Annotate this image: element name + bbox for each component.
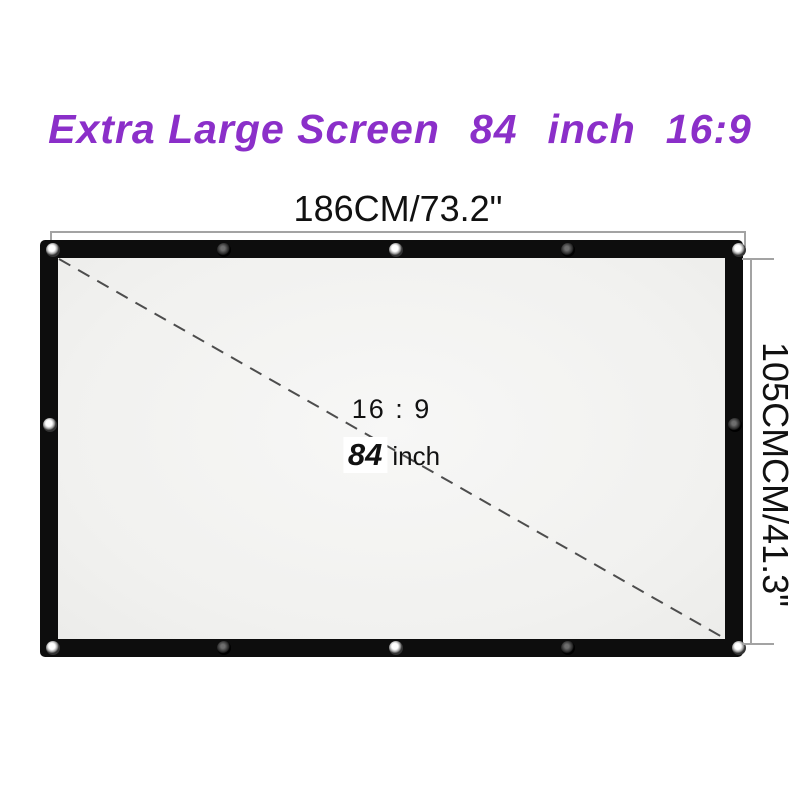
grommet-icon (732, 243, 746, 257)
grommet-icon (561, 641, 575, 655)
grommet-icon (46, 243, 60, 257)
screen-size-unit: inch (392, 441, 440, 471)
screen-surface: 16 : 9 84inch (58, 258, 725, 639)
grommet-icon (389, 641, 403, 655)
grommet-icon (217, 243, 231, 257)
title-size-value: 84 (470, 106, 518, 152)
title-size-unit: inch (548, 106, 636, 152)
screen-center-labels: 16 : 9 84inch (343, 394, 440, 473)
grommet-icon (561, 243, 575, 257)
grommet-icon (217, 641, 231, 655)
title-main: Extra Large Screen (48, 106, 440, 152)
screen-size-text: 84inch (343, 437, 440, 473)
projection-screen: 16 : 9 84inch (40, 240, 743, 657)
height-dimension-label: 105CMCM/41.3" (754, 342, 796, 607)
title-aspect-ratio: 16:9 (666, 106, 752, 152)
grommet-icon (728, 418, 742, 432)
grommet-icon (43, 418, 57, 432)
grommet-icon (389, 243, 403, 257)
width-dimension-label: 186CM/73.2" (50, 188, 746, 230)
product-diagram: Extra Large Screen84inch16:9 186CM/73.2"… (0, 0, 800, 800)
screen-aspect-text: 16 : 9 (343, 394, 440, 425)
page-title: Extra Large Screen84inch16:9 (0, 106, 800, 153)
grommet-icon (46, 641, 60, 655)
screen-size-value: 84 (343, 437, 387, 473)
